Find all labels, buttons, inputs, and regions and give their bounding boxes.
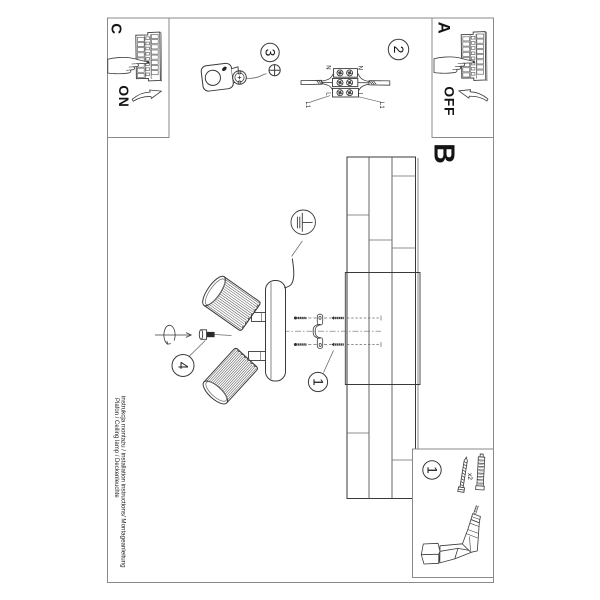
svg-text:OFF: OFF bbox=[441, 86, 457, 116]
svg-text:x2: x2 bbox=[466, 473, 473, 480]
svg-text:L1: L1 bbox=[304, 102, 310, 109]
svg-text:3: 3 bbox=[263, 49, 278, 57]
svg-text:instrukcja montażu / installat: instrukcja montażu / installation instru… bbox=[120, 396, 127, 568]
svg-text:B: B bbox=[428, 143, 460, 164]
svg-text:Plafon / Ceiling lamp / Decken: Plafon / Ceiling lamp / Deckenleuchte bbox=[113, 398, 119, 498]
svg-text:N: N bbox=[357, 66, 363, 70]
svg-text:L1: L1 bbox=[378, 102, 384, 109]
svg-text:4: 4 bbox=[176, 362, 191, 370]
svg-text:C: C bbox=[108, 23, 125, 34]
svg-text:1: 1 bbox=[425, 466, 440, 474]
svg-text:1: 1 bbox=[311, 378, 326, 386]
svg-text:ON: ON bbox=[116, 85, 132, 107]
svg-text:A: A bbox=[434, 22, 452, 34]
svg-text:2: 2 bbox=[391, 46, 406, 54]
svg-text:N: N bbox=[325, 65, 331, 69]
